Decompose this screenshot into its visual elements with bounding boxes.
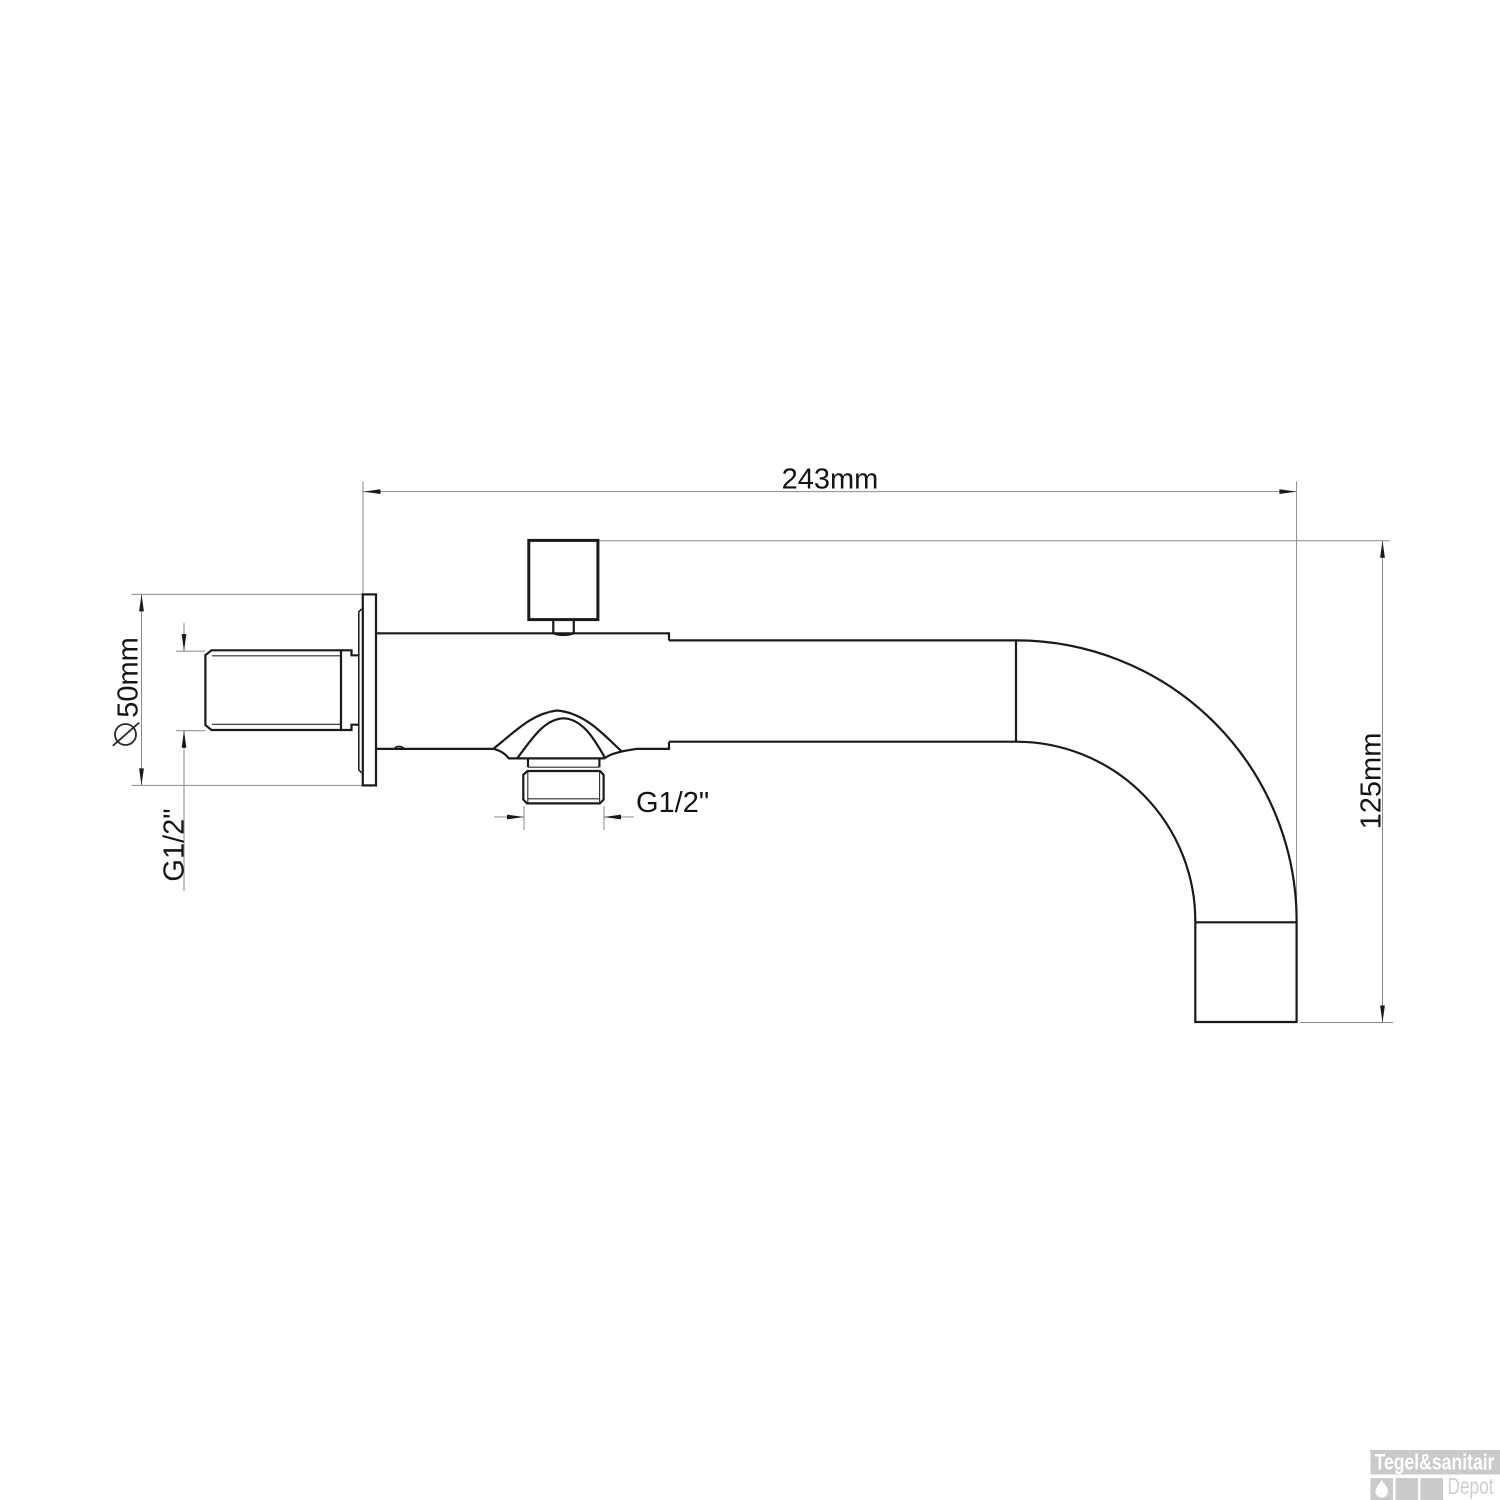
svg-text:G1/2": G1/2" (159, 808, 191, 881)
svg-text:125mm: 125mm (1356, 733, 1388, 830)
svg-text:50mm: 50mm (113, 637, 145, 718)
svg-text:Tegel&sanitair: Tegel&sanitair (1375, 1450, 1495, 1475)
svg-text:243mm: 243mm (782, 464, 879, 496)
svg-text:G1/2": G1/2" (636, 787, 709, 819)
svg-text:Depot: Depot (1448, 1473, 1494, 1499)
